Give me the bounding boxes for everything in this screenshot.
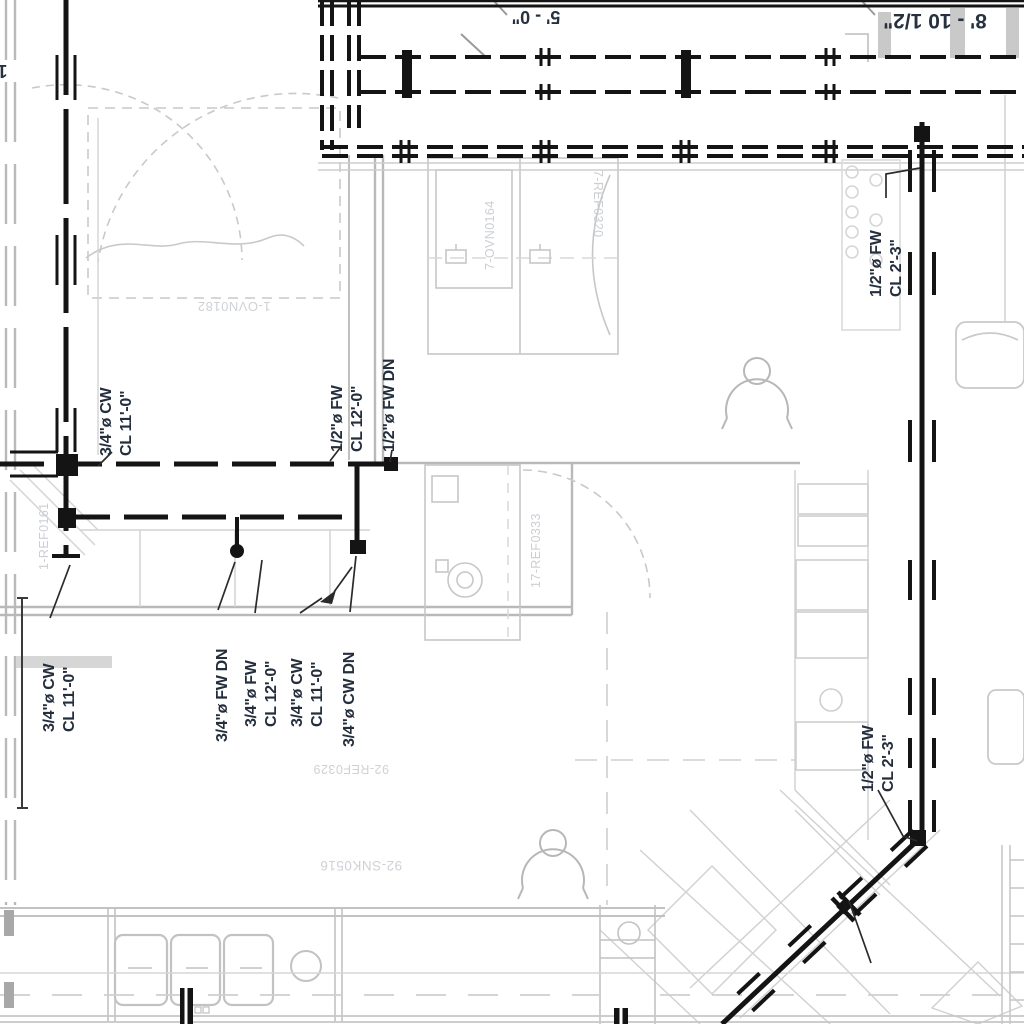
pipe-label-fw-dn-lower: 3/4"ø FW DN [213, 649, 233, 742]
pipe-label-fw-12ft-upper: 1/2"ø FW CL 12'-0" [328, 385, 368, 452]
pipe-label-fw-2ft3-upper: 1/2"ø FW CL 2'-3" [867, 230, 907, 297]
pipe-label-cw-11ft-upper: 3/4"ø CW CL 11'-0" [97, 388, 137, 456]
underlay-door-arcs [32, 85, 650, 598]
underlay-bottom-counter [0, 905, 1024, 1024]
pipe-label-fw-2ft3-lower: 1/2"ø FW CL 2'-3" [859, 725, 899, 792]
dimension-5ft: 5' - 0" [490, 6, 582, 27]
underlay-undercounter-fridge [425, 465, 520, 640]
equipment-tag-ref0161: 1-REF0161 [37, 502, 51, 570]
dimension-8ft-10half: 8' - 10 1/2" [856, 8, 1014, 32]
underlay-right-equipment-column [795, 95, 1005, 840]
underlay-chairs [845, 8, 1024, 764]
equipment-tag-ref0329: 92-REF0329 [306, 762, 396, 776]
pipe-label-cw-dn-lower: 3/4"ø CW DN [340, 652, 360, 747]
pipe-label-fw-dn-upper: 1/2"ø FW DN [380, 359, 400, 452]
equipment-tag-snk0516: 92-SNK0516 [299, 858, 423, 873]
pipe-label-cw-11ft-lower: 3/4"ø CW CL 11'-0" [288, 659, 328, 727]
dimension-left-edge-partial: 10' - 0" [0, 60, 38, 81]
plan-drawing [0, 0, 1024, 1024]
dimension-left-edge-partial-2: 5' - 0" [0, 96, 28, 120]
equipment-tag-ovn0164: 7-OVN0164 [483, 200, 497, 270]
equipment-tag-ovn0182: 1-OVN0182 [175, 299, 293, 314]
person-figure-lower [518, 830, 588, 899]
pipe-label-fw-12ft-lower: 3/4"ø FW CL 12'-0" [242, 660, 282, 727]
underlay-dashed-gridlines [575, 612, 795, 905]
pipe-label-cw-11ft-lower-left: 3/4"ø CW CL 11'-0" [40, 664, 80, 732]
equipment-tag-ref0320: 7-REF0320 [591, 170, 605, 238]
right-pipe-run [180, 122, 934, 1024]
person-figure-upper [722, 358, 792, 429]
left-pipe-run [0, 0, 398, 558]
equipment-tag-ref0333: 17-REF0333 [529, 513, 543, 588]
floor-plan-canvas: 5' - 0" 8' - 10 1/2" 10' - 0" 5' - 0" 3/… [0, 0, 1024, 1024]
